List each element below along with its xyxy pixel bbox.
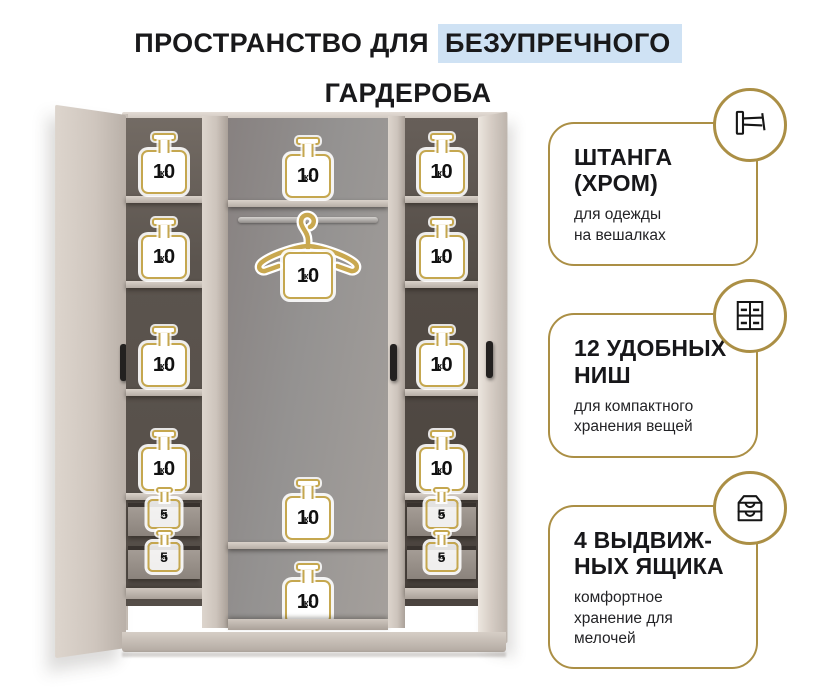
weight-badge-5kg: 5 кг: [425, 542, 458, 572]
drawers-icon: [729, 487, 771, 529]
weight-stem: [303, 144, 314, 157]
title-line2: ГАРДЕРОБА: [0, 74, 816, 113]
column-floor: [405, 588, 478, 599]
shelf: [126, 389, 202, 396]
shelf: [228, 542, 388, 549]
weight-stem: [436, 225, 447, 238]
door-handle-middle: [390, 344, 397, 381]
open-door-right: [478, 112, 507, 644]
weight-badge-5kg: 5 кг: [148, 499, 181, 529]
infographic-page: ПРОСТРАНСТВО ДЛЯ БЕЗУПРЕЧНОГО ГАРДЕРОБА …: [0, 0, 816, 700]
clothes-rail-icon: [729, 104, 771, 146]
weight-badge-10kg: 10 кг: [285, 580, 331, 624]
weight-unit: кг: [438, 554, 444, 561]
weight-badge-10kg: 10 кг: [141, 447, 187, 491]
weight-stem: [159, 225, 170, 238]
wardrobe-illustration: 10 кг 10 кг 10 кг 10 кг 5: [36, 112, 512, 657]
shelves-icon: [729, 295, 771, 337]
weight-badge-10kg: 10 кг: [283, 252, 333, 299]
callout-subtitle: комфортное хранение для мелочей: [574, 588, 742, 649]
middle-hanging-section: 10 кг 10: [228, 118, 388, 630]
drawer-front: 5 кг: [407, 546, 476, 579]
open-door-left: [55, 105, 126, 658]
callout-icon-circle: [713, 279, 787, 353]
shelf: [228, 200, 388, 207]
callout-niches: 12 УДОБНЫХ НИШ для компактного хранения …: [548, 313, 758, 457]
shelf: [126, 196, 202, 203]
weight-unit: кг: [304, 599, 312, 608]
left-shelf-column: 10 кг 10 кг 10 кг 10 кг 5: [126, 118, 202, 606]
callout-subtitle: для компактного хранения вещей: [574, 397, 742, 438]
door-handle-right: [486, 341, 493, 378]
shelf: [126, 281, 202, 288]
callout-rod: ШТАНГА (ХРОМ) для одежды на вешалках: [548, 122, 758, 266]
callout-title: ШТАНГА (ХРОМ): [574, 144, 742, 196]
weight-badge-10kg: 10 кг: [419, 447, 465, 491]
hanger-with-weight: 10 кг: [243, 210, 373, 306]
shelf: [405, 196, 478, 203]
weight-stem: [160, 492, 168, 502]
title-prefix: ПРОСТРАНСТВО ДЛЯ: [134, 30, 429, 57]
shelf: [405, 281, 478, 288]
partition-door-edge: [202, 116, 228, 628]
weight-unit: кг: [437, 466, 445, 475]
weight-unit: кг: [160, 169, 168, 178]
weight-unit: кг: [437, 169, 445, 178]
weight-unit: кг: [160, 362, 168, 371]
weight-stem: [438, 492, 446, 502]
weight-badge-5kg: 5 кг: [148, 542, 181, 572]
title-highlight: БЕЗУПРЕЧНОГО: [438, 24, 682, 63]
weight-stem: [438, 535, 446, 545]
callout-title: 12 УДОБНЫХ НИШ: [574, 335, 742, 387]
weight-stem: [160, 535, 168, 545]
weight-unit: кг: [304, 515, 312, 524]
weight-unit: кг: [437, 254, 445, 263]
column-floor: [228, 619, 388, 630]
weight-badge-10kg: 10 кг: [141, 150, 187, 194]
weight-unit: кг: [437, 362, 445, 371]
weight-unit: кг: [160, 466, 168, 475]
weight-unit: кг: [160, 254, 168, 263]
weight-unit: кг: [304, 173, 312, 182]
weight-stem: [436, 333, 447, 346]
weight-stem: [303, 570, 314, 583]
column-floor: [126, 588, 202, 599]
callout-drawers: 4 ВЫДВИЖ- НЫХ ЯЩИКА комфортное хранение …: [548, 505, 758, 670]
callout-subtitle: для одежды на вешалках: [574, 205, 742, 246]
drawer-front: 5 кг: [128, 546, 200, 579]
weight-unit: кг: [438, 511, 444, 518]
weight-stem: [159, 140, 170, 153]
weight-stem: [303, 486, 314, 499]
weight-badge-10kg: 10 кг: [285, 154, 331, 198]
right-shelf-column: 10 кг 10 кг 10 кг 10 кг 5: [405, 118, 478, 606]
page-title: ПРОСТРАНСТВО ДЛЯ БЕЗУПРЕЧНОГО ГАРДЕРОБА: [0, 24, 816, 113]
weight-badge-10kg: 10 кг: [141, 235, 187, 279]
callout-icon-circle: [713, 471, 787, 545]
weight-badge-10kg: 10 кг: [141, 343, 187, 387]
callout-icon-circle: [713, 88, 787, 162]
weight-unit: кг: [304, 272, 312, 281]
weight-badge-10kg: 10 кг: [419, 343, 465, 387]
weight-badge-5kg: 5 кг: [425, 499, 458, 529]
weight-stem: [436, 437, 447, 450]
shelf: [405, 389, 478, 396]
floor-shadow: [122, 652, 506, 657]
callout-title: 4 ВЫДВИЖ- НЫХ ЯЩИКА: [574, 527, 742, 579]
weight-badge-10kg: 10 кг: [419, 235, 465, 279]
weight-unit: кг: [161, 554, 167, 561]
weight-stem: [159, 437, 170, 450]
weight-badge-10kg: 10 кг: [285, 496, 331, 540]
weight-badge-10kg: 10 кг: [419, 150, 465, 194]
weight-stem: [159, 333, 170, 346]
wardrobe-base: [122, 632, 506, 652]
feature-callouts: ШТАНГА (ХРОМ) для одежды на вешалках 12 …: [548, 122, 758, 700]
weight-unit: кг: [161, 511, 167, 518]
weight-stem: [436, 140, 447, 153]
